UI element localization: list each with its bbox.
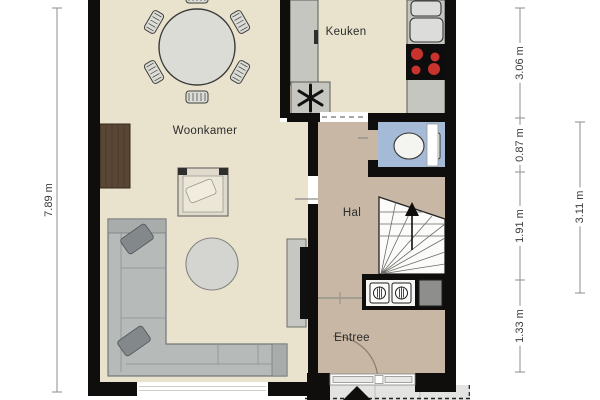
dim-label-right-4: 1.33 m	[514, 306, 526, 346]
dim-label-right-outer: 3.11 m	[574, 188, 586, 227]
floorplan-canvas: Woonkamer Keuken Hal Entree 7.89 m 3.06 …	[0, 0, 600, 400]
kitchen-counter-right	[406, 0, 445, 118]
tv	[300, 247, 309, 319]
room-label-keuken: Keuken	[326, 26, 367, 38]
dining-table	[159, 9, 235, 85]
ventilation-unit	[291, 82, 330, 114]
dim-label-right-1: 3.06 m	[514, 43, 526, 83]
cooktop-4-burner	[406, 44, 445, 80]
keuken-hal-passage	[320, 112, 368, 122]
dim-label-right-3: 1.91 m	[514, 206, 526, 246]
kitchen-counter-left	[290, 0, 318, 85]
round-rug	[186, 238, 238, 290]
room-label-hal: Hal	[343, 207, 361, 219]
dim-label-left-total: 7.89 m	[43, 180, 55, 220]
meter-unit	[370, 283, 389, 303]
room-label-entree: Entree	[334, 332, 370, 344]
media-cabinet-wood	[100, 124, 130, 188]
meter-unit	[392, 283, 411, 303]
toilet-door	[427, 124, 438, 166]
tv-lowboard	[287, 239, 309, 327]
armchair	[178, 168, 228, 216]
floorplan-drawing	[0, 0, 600, 400]
sink-basin-small	[411, 1, 441, 16]
dim-label-right-2: 0.87 m	[514, 125, 526, 165]
duct-shaft	[419, 280, 442, 306]
room-label-woonkamer: Woonkamer	[173, 125, 237, 137]
window	[137, 382, 268, 396]
meter-cupboard	[362, 274, 445, 310]
sink-basin-large	[410, 18, 443, 42]
